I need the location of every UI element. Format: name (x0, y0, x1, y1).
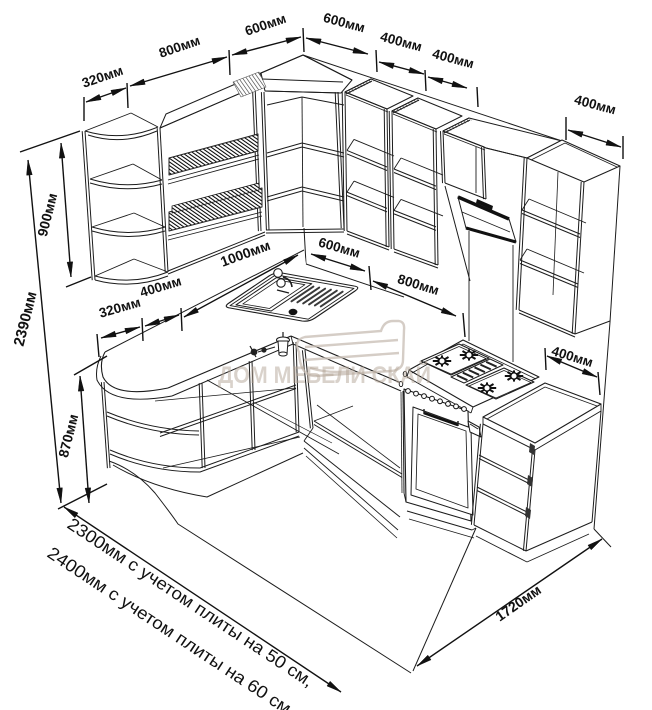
svg-text:ДОМ МЕБЕЛИ СКАЙ: ДОМ МЕБЕЛИ СКАЙ (218, 361, 431, 389)
